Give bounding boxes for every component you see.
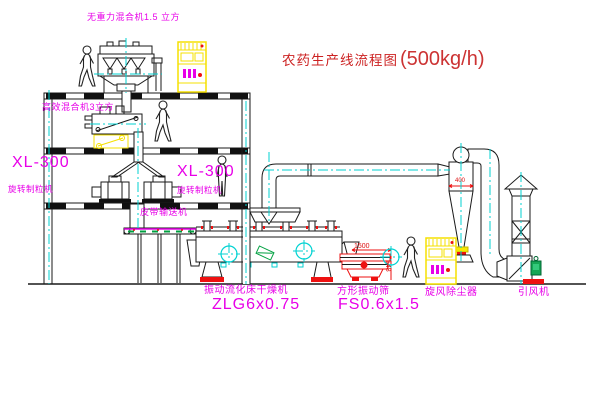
cabinet-indicator-lights bbox=[431, 265, 444, 274]
worker-2f bbox=[155, 101, 171, 141]
granulator-left bbox=[92, 176, 131, 203]
control-cabinet-bottom bbox=[426, 238, 456, 284]
granulator-right bbox=[142, 176, 181, 203]
exhaust-hood-and-duct bbox=[250, 164, 450, 224]
dim-cyclone-dia: 400 bbox=[455, 178, 465, 184]
dim-sieve-length: 1500 bbox=[354, 243, 370, 250]
label-high-efficiency-mixer: 高效混合机3立方 bbox=[42, 103, 114, 112]
label-granulator-right-model: XL-300 bbox=[177, 164, 235, 180]
cabinet-indicator-lights bbox=[183, 69, 196, 78]
control-cabinet-top bbox=[178, 42, 206, 92]
dim-sieve-height: 548 bbox=[384, 260, 391, 272]
process-flow-drawing: 农药生产线流程图 (500kg/h) 无重力混合机1.5 立方 高效混合机3立方… bbox=[0, 0, 600, 403]
label-sieve-model: FS0.6x1.5 bbox=[338, 297, 420, 313]
label-granulator-left-name: 旋转制粒机 bbox=[8, 185, 53, 194]
dryer-bottom-fittings bbox=[221, 263, 303, 267]
drawing-title: 农药生产线流程图 (500kg/h) bbox=[282, 48, 485, 71]
label-gravity-free-mixer: 无重力混合机1.5 立方 bbox=[87, 13, 180, 22]
label-dryer-model: ZLG6x0.75 bbox=[212, 297, 300, 313]
mixer-belt-drive bbox=[94, 135, 128, 149]
label-granulator-left-model: XL-300 bbox=[12, 155, 70, 171]
label-granulator-right-name: 旋转制粒机 bbox=[177, 186, 222, 195]
title-capacity: (500kg/h) bbox=[400, 48, 485, 71]
label-dryer-name: 振动流化床干燥机 bbox=[204, 286, 288, 296]
label-belt-conveyor: 皮带输送机 bbox=[140, 208, 188, 217]
worker-ground bbox=[403, 237, 419, 277]
cyclone-to-fan-duct bbox=[468, 149, 508, 277]
worker-roof bbox=[79, 46, 95, 86]
label-cyclone: 旋风除尘器 bbox=[425, 288, 478, 298]
fluid-bed-dryer bbox=[196, 221, 359, 282]
belt-conveyor bbox=[124, 228, 196, 283]
title-text: 农药生产线流程图 bbox=[282, 49, 398, 69]
label-fan: 引风机 bbox=[518, 288, 550, 298]
